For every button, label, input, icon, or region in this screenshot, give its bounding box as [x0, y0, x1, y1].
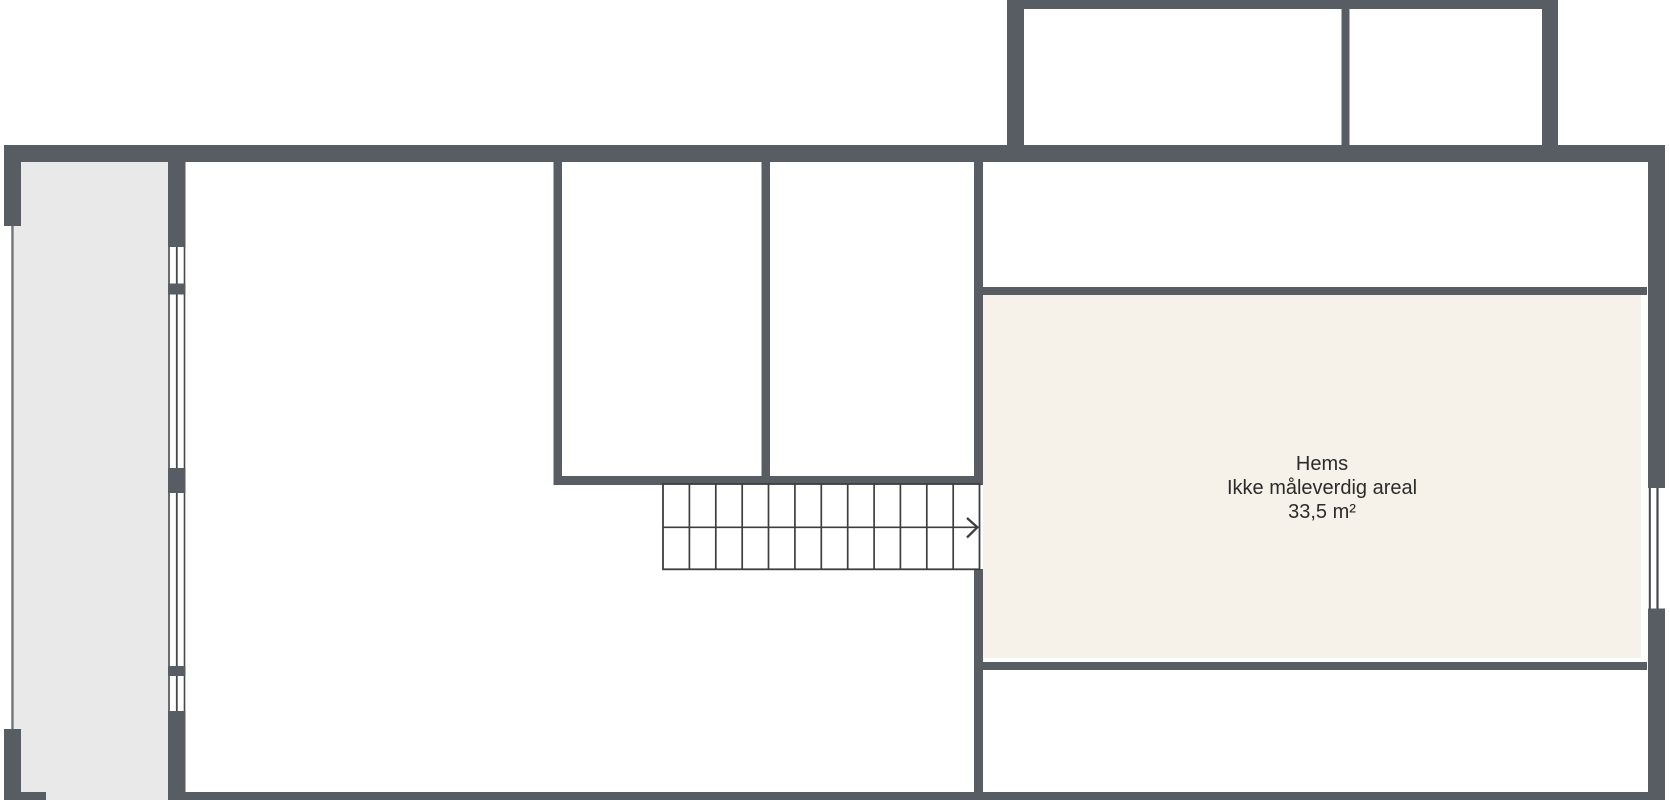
svg-text:33,5 m²: 33,5 m²	[1288, 501, 1356, 523]
svg-text:Hems: Hems	[1296, 453, 1348, 475]
svg-text:Ikke måleverdig areal: Ikke måleverdig areal	[1227, 477, 1417, 499]
